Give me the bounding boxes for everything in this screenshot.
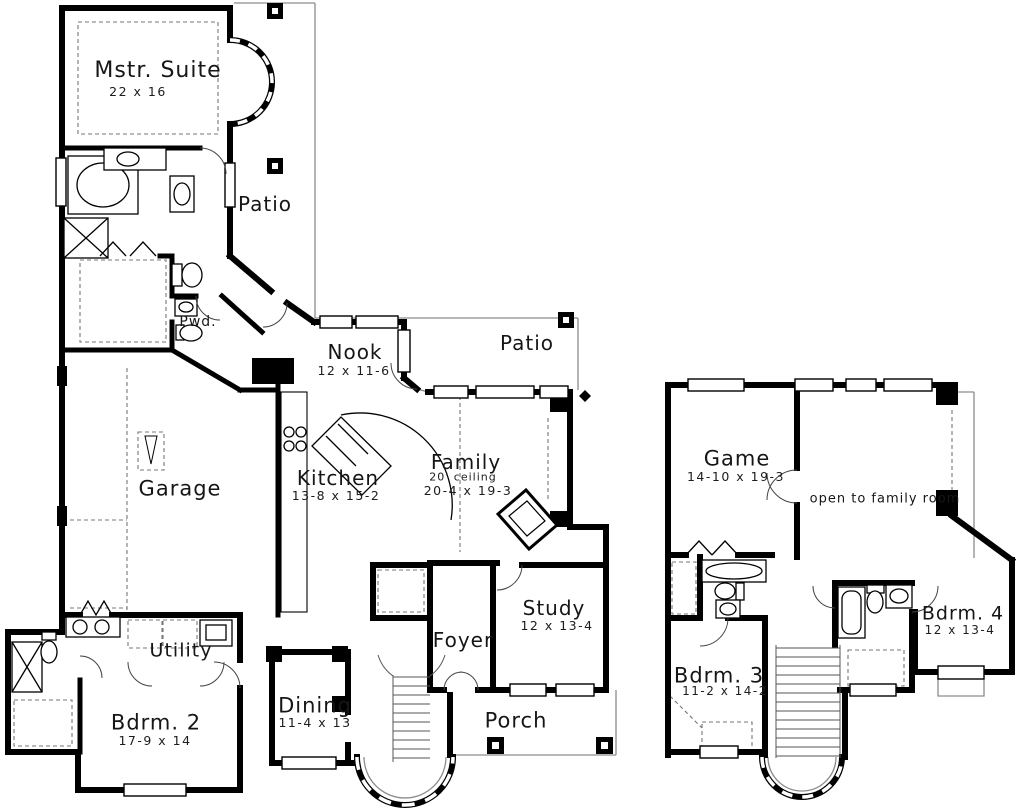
patio-post — [558, 312, 574, 328]
room-dims-study: 12 x 13-4 — [520, 620, 593, 633]
room-dims-nook: 12 x 11-6 — [317, 365, 390, 378]
room-label-utility: Utility — [150, 642, 213, 661]
bath3-sink — [716, 600, 740, 618]
patio-post — [267, 3, 283, 19]
bath2-vanity — [66, 617, 120, 637]
floorplan-page: Mstr. Suite 22 x 16 Patio Pwd. Nook 12 x… — [0, 0, 1024, 810]
room-label-patio-right: Patio — [500, 333, 554, 353]
room-label-game: Game — [704, 449, 771, 470]
bath4-tub — [838, 587, 865, 638]
room-label-bdrm4: Bdrm. 4 — [922, 605, 1004, 624]
bath4-toilet — [867, 585, 884, 613]
room-label-dining: Dining — [278, 696, 352, 717]
fixtures-first-floor — [12, 148, 557, 692]
room-label-bdrm2: Bdrm. 2 — [111, 713, 201, 734]
room-dims-bdrm4: 12 x 13-4 — [925, 624, 996, 636]
room-label-open-to-family: open to family room — [810, 493, 961, 506]
bath2-toilet — [41, 632, 57, 663]
room-label-family: Family — [431, 452, 501, 472]
room-label-foyer: Foyer — [433, 630, 493, 650]
room-label-kitchen: Kitchen — [297, 468, 379, 488]
room-dims-kitchen: 13-8 x 15-2 — [292, 490, 381, 503]
room-label-pwd: Pwd. — [179, 315, 216, 329]
patio-post — [267, 158, 283, 174]
room-dims-family: 20-4 x 19-3 — [424, 485, 513, 498]
room-label-mstr-suite: Mstr. Suite — [94, 60, 221, 82]
room-dims-game: 14-10 x 19-3 — [687, 471, 785, 484]
door-arcs — [80, 148, 938, 690]
stairs-second-floor — [776, 645, 840, 758]
wc-toilet — [172, 263, 202, 287]
floorplan-drawing — [0, 0, 1024, 810]
room-dims-dining: 11-4 x 13 — [278, 717, 351, 730]
bath3-toilet — [715, 583, 744, 600]
bath2-shower — [12, 642, 42, 692]
master-cabinet — [170, 176, 194, 212]
master-vanity — [104, 148, 166, 170]
game-closet-doors — [686, 541, 738, 555]
room-dims-bdrm3: 11-2 x 14-2 — [682, 685, 768, 697]
porch-post — [596, 737, 613, 754]
room-label-garage: Garage — [139, 479, 222, 500]
room-dims-mstr-suite: 22 x 16 — [109, 86, 167, 99]
porch-post — [487, 737, 504, 754]
master-shower — [64, 218, 108, 258]
bath3-tub — [702, 560, 766, 582]
patio-post-small — [579, 390, 591, 402]
room-label-study: Study — [523, 598, 586, 618]
room-label-porch: Porch — [485, 711, 548, 732]
room-dims-bdrm2: 17-9 x 14 — [118, 735, 191, 748]
stairs-first-floor — [378, 655, 445, 762]
bath4-sink — [886, 585, 912, 608]
room-label-nook: Nook — [327, 342, 382, 362]
room-label-patio-top: Patio — [238, 194, 292, 214]
water-heater — [145, 436, 157, 464]
room-note-family: 20' ceiling — [429, 472, 496, 483]
